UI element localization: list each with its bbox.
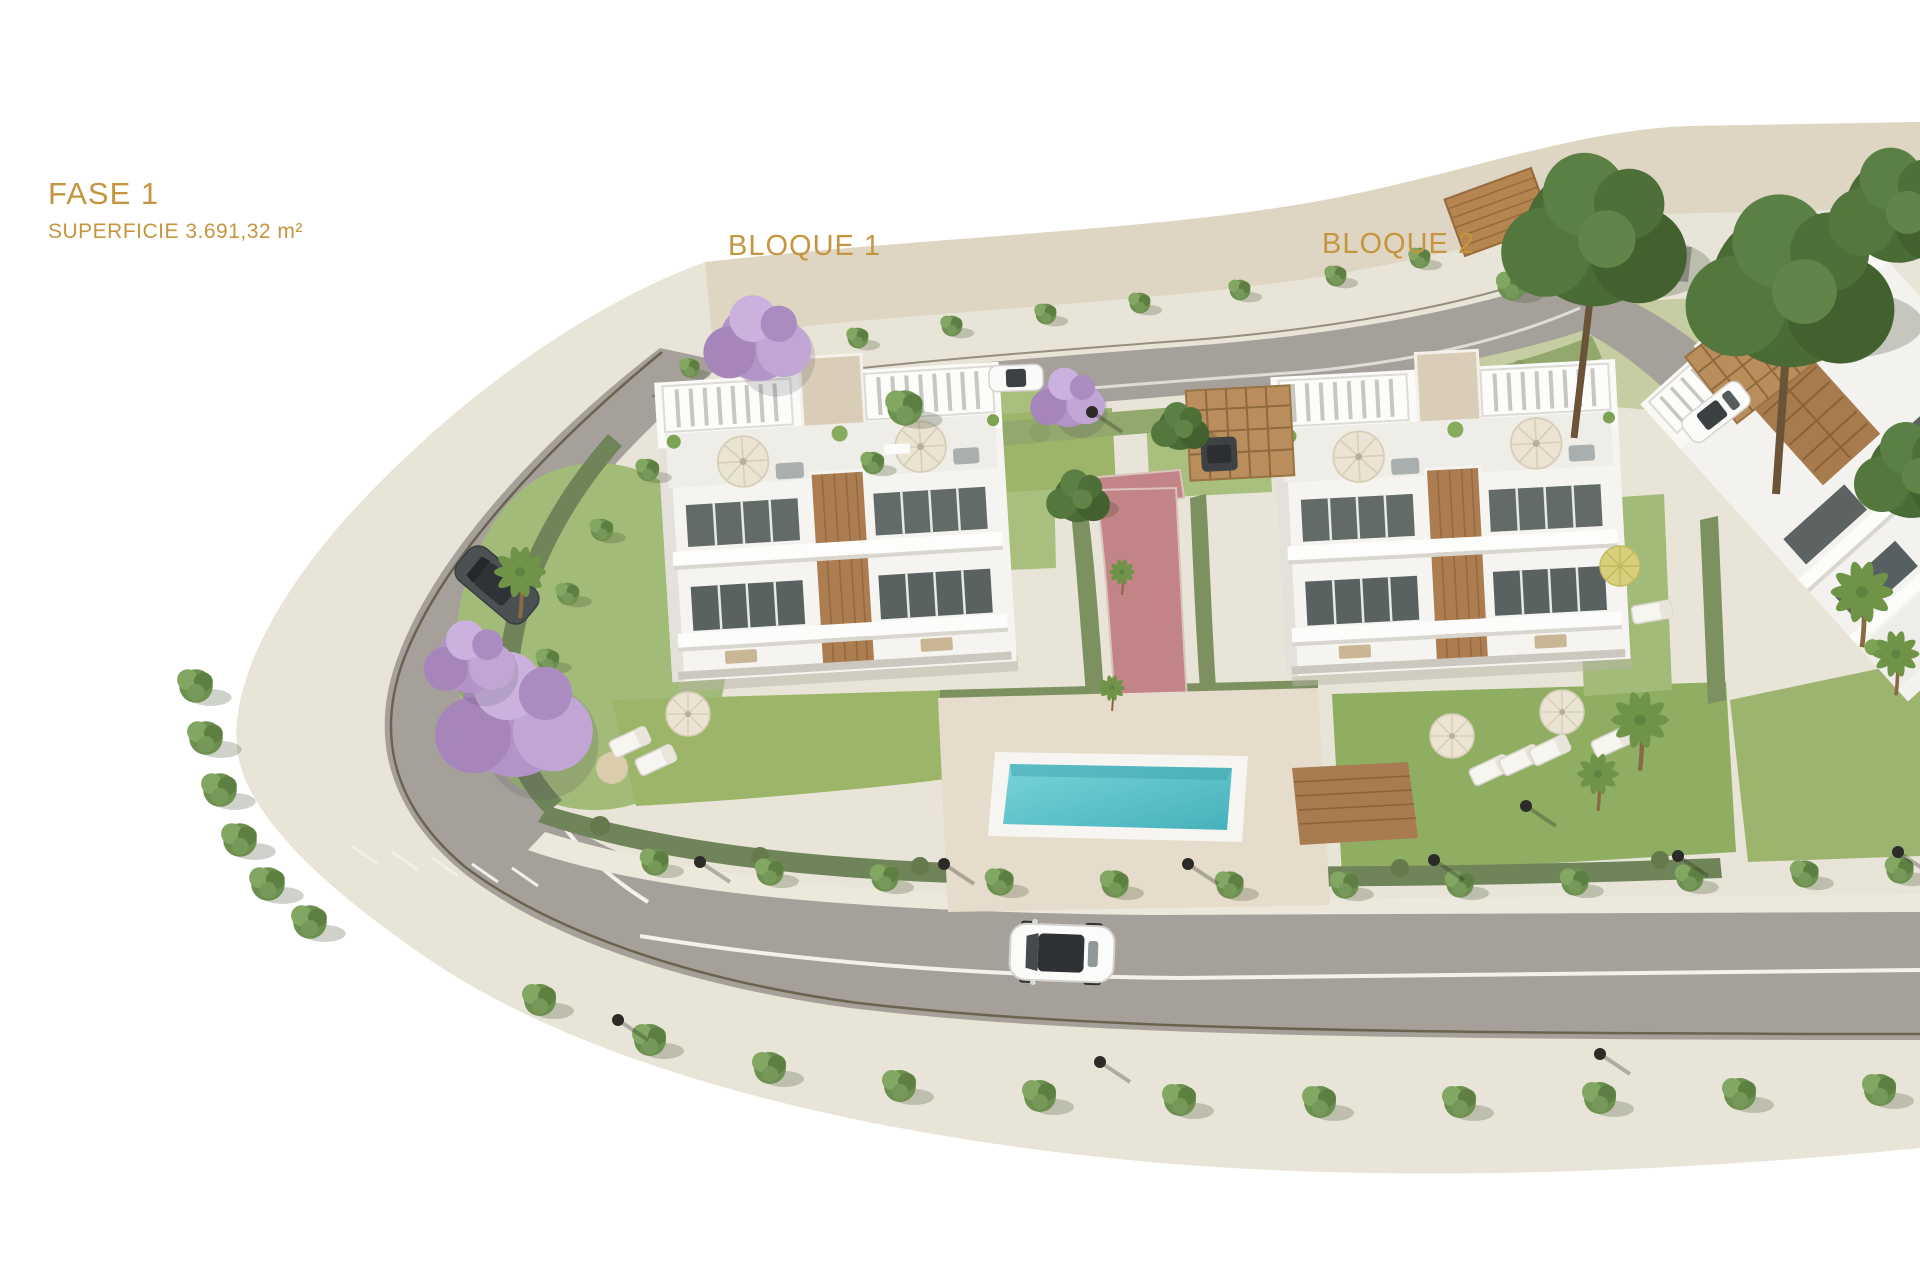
- render-canvas: FASE 1 SUPERFICIE 3.691,32 m² BLOQUE 1 B…: [0, 0, 1920, 1280]
- phase-title: FASE 1: [48, 176, 159, 212]
- yellow-umbrella: [1600, 546, 1640, 586]
- white-car-road: [1009, 918, 1115, 988]
- bloque-1-building: [653, 346, 1018, 693]
- wood-deck: [1292, 762, 1418, 845]
- phase-surface-label: SUPERFICIE 3.691,32 m²: [48, 220, 303, 244]
- block-2-label: BLOQUE 2: [1322, 228, 1475, 261]
- site-render-svg: [0, 0, 1920, 1280]
- block-1-label: BLOQUE 1: [728, 230, 881, 263]
- parked-white-car: [989, 364, 1044, 392]
